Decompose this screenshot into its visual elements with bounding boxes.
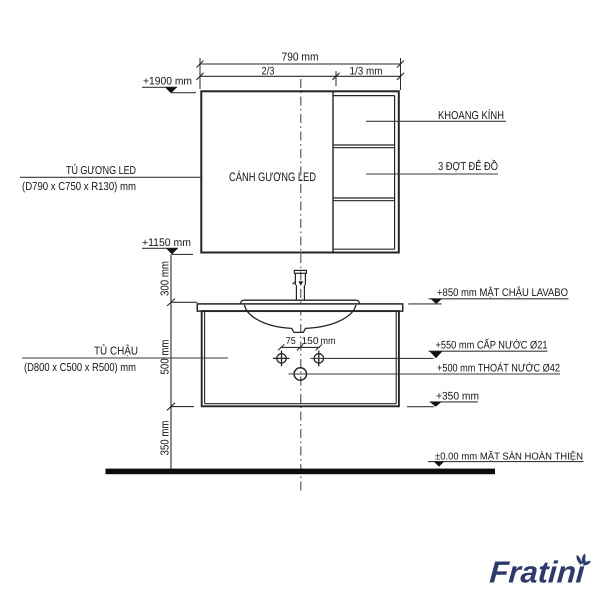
svg-text:75: 75 bbox=[286, 336, 296, 347]
svg-text:+1900 mm: +1900 mm bbox=[143, 76, 192, 88]
svg-text:TỦ GƯƠNG LED: TỦ GƯƠNG LED bbox=[66, 163, 136, 177]
svg-text:Fratini: Fratini bbox=[488, 556, 586, 590]
svg-text:mm: mm bbox=[321, 336, 336, 347]
svg-text:150: 150 bbox=[302, 336, 319, 347]
svg-text:350 mm: 350 mm bbox=[160, 421, 172, 456]
svg-text:1/3 mm: 1/3 mm bbox=[350, 65, 383, 77]
svg-text:3 ĐỢT ĐỂ ĐỒ: 3 ĐỢT ĐỂ ĐỒ bbox=[438, 159, 498, 173]
svg-text:+550 mm CẤP NƯỚC Ø21: +550 mm CẤP NƯỚC Ø21 bbox=[436, 339, 548, 352]
svg-text:TỦ CHẬU: TỦ CHẬU bbox=[94, 344, 138, 358]
svg-text:+1150 mm: +1150 mm bbox=[142, 237, 191, 249]
svg-text:790 mm: 790 mm bbox=[282, 52, 319, 64]
svg-text:+350 mm: +350 mm bbox=[436, 390, 479, 402]
svg-text:±0.00 mm MẶT SÀN HOÀN THIỆN: ±0.00 mm MẶT SÀN HOÀN THIỆN bbox=[435, 450, 583, 462]
svg-text:(D790 x C750 x R130) mm: (D790 x C750 x R130) mm bbox=[22, 181, 136, 193]
svg-text:(D800 x C500 x R500) mm: (D800 x C500 x R500) mm bbox=[24, 362, 136, 374]
svg-text:500 mm: 500 mm bbox=[160, 340, 172, 375]
svg-text:2/3: 2/3 bbox=[262, 65, 275, 77]
svg-text:CÁNH GƯƠNG LED: CÁNH GƯƠNG LED bbox=[229, 170, 316, 184]
svg-text:KHOANG KÍNH: KHOANG KÍNH bbox=[438, 109, 504, 122]
svg-text:300 mm: 300 mm bbox=[160, 261, 172, 296]
svg-text:+850 mm MẶT CHẬU LAVABO: +850 mm MẶT CHẬU LAVABO bbox=[437, 286, 568, 299]
svg-text:+500 mm THOÁT NƯỚC Ø42: +500 mm THOÁT NƯỚC Ø42 bbox=[437, 361, 560, 374]
